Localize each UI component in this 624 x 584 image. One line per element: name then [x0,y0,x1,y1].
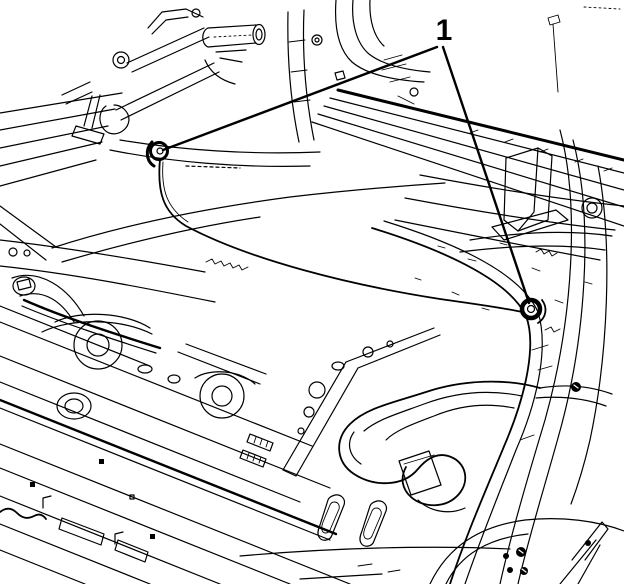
weatherstrip-bead [0,509,46,519]
antenna-wire [553,24,558,92]
spare-wheel-well [9,248,266,419]
rear-suspension-assembly [62,0,430,166]
floor-slot [360,501,387,546]
service-manual-figure: 1 [0,0,624,584]
hatched-slot [240,450,266,467]
pointed-bracket [560,522,608,584]
technical-diagram: 1 [0,0,624,584]
hatched-slot [247,434,273,451]
callout-1-leader-right [443,47,529,303]
floor-slot [318,495,345,540]
antenna-cable [159,159,522,312]
callout-1-leader-left [163,47,437,150]
callout-1-label: 1 [436,14,453,47]
hinge-gooseneck-bracket [339,382,612,512]
wheelhouse-arch [372,130,624,584]
